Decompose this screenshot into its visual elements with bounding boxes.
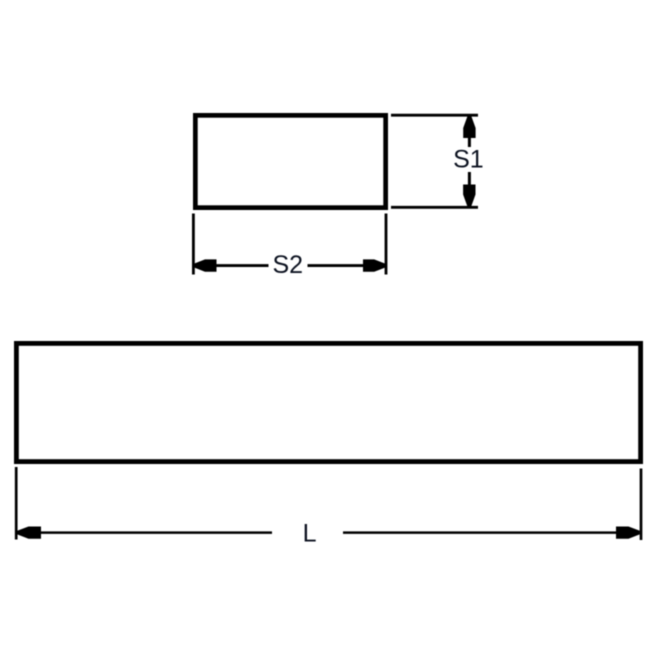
svg-text:S2: S2 — [273, 251, 304, 279]
svg-text:L: L — [303, 520, 317, 548]
svg-text:S1: S1 — [453, 145, 484, 173]
